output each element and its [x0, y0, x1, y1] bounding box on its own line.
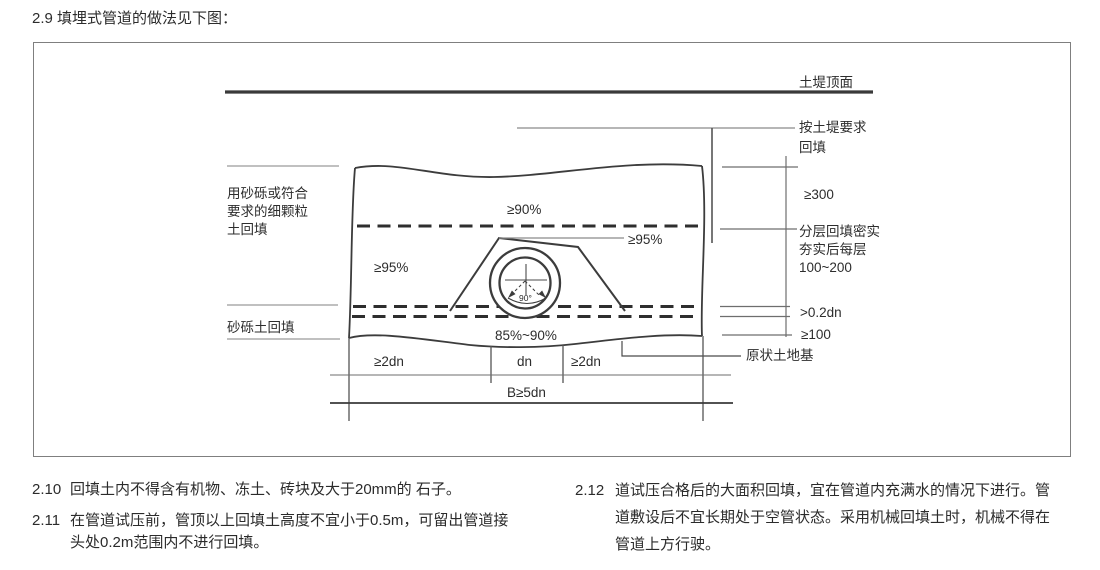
dim-100-label: ≥100: [801, 327, 831, 342]
undisturbed-soil-leader: [622, 341, 741, 356]
dim-300-label: ≥300: [804, 187, 834, 202]
notes-right-column: 2.12 道试压合格后的大面积回填，宜在管道内充满水的情况下进行。管道敷设后不宜…: [575, 477, 1057, 558]
zone-90-label: ≥90%: [507, 202, 541, 217]
notes-left-column: 2.10 回填土内不得含有机物、冻土、砖块及大于20mm的 石子。 2.11 在…: [32, 479, 510, 554]
fine-soil-label-2: 要求的细颗粒: [227, 204, 308, 219]
spec-page: 2.9 填埋式管道的做法见下图： 土堤顶面 按土堤要求 回填 用砂砾或符合 要求…: [0, 0, 1100, 570]
note-number: 2.12: [575, 477, 615, 504]
backfill-req-label-2: 回填: [799, 140, 826, 155]
layered-label-2: 夯实后每层: [799, 242, 867, 257]
note-number: 2.11: [32, 510, 70, 532]
undisturbed-soil-label: 原状土地基: [746, 347, 814, 363]
soil-block-right-edge: [702, 166, 705, 336]
dim-02dn-label: >0.2dn: [800, 305, 842, 320]
backfill-req-label-1: 按土堤要求: [799, 120, 867, 135]
note-text: 回填土内不得含有机物、冻土、砖块及大于20mm的 石子。: [70, 479, 510, 501]
layered-label-1: 分层回填密实: [799, 223, 880, 239]
embankment-top-label: 土堤顶面: [799, 75, 853, 90]
note-text: 道试压合格后的大面积回填，宜在管道内充满水的情况下进行。管道敷设后不宜长期处于空…: [615, 477, 1051, 558]
note-2-11: 2.11 在管道试压前，管顶以上回填土高度不宜小于0.5m，可留出管道接头处0.…: [32, 510, 510, 554]
soil-block-left-edge: [349, 168, 355, 338]
fine-soil-label-1: 用砂砾或符合: [227, 186, 308, 201]
dim-left-2dn-label: ≥2dn: [374, 354, 404, 369]
zone-95-left-label: ≥95%: [374, 260, 408, 275]
angle-label: 90°: [519, 293, 532, 303]
note-number: 2.10: [32, 479, 70, 501]
zone-95-right-label: ≥95%: [628, 232, 662, 247]
layered-label-3: 100~200: [799, 260, 852, 275]
fine-soil-label-3: 土回填: [227, 222, 268, 237]
zone-85-90-label: 85%~90%: [495, 328, 557, 343]
soil-block-top-edge: [355, 164, 702, 177]
note-2-10: 2.10 回填土内不得含有机物、冻土、砖块及大于20mm的 石子。: [32, 479, 510, 501]
note-text: 在管道试压前，管顶以上回填土高度不宜小于0.5m，可留出管道接头处0.2m范围内…: [70, 510, 510, 554]
gravel-backfill-label: 砂砾土回填: [227, 320, 295, 335]
dim-dn-label: dn: [517, 354, 532, 369]
dim-b5dn-label: B≥5dn: [507, 385, 546, 400]
note-2-12: 2.12 道试压合格后的大面积回填，宜在管道内充满水的情况下进行。管道敷设后不宜…: [575, 477, 1057, 558]
dim-right-2dn-label: ≥2dn: [571, 354, 601, 369]
